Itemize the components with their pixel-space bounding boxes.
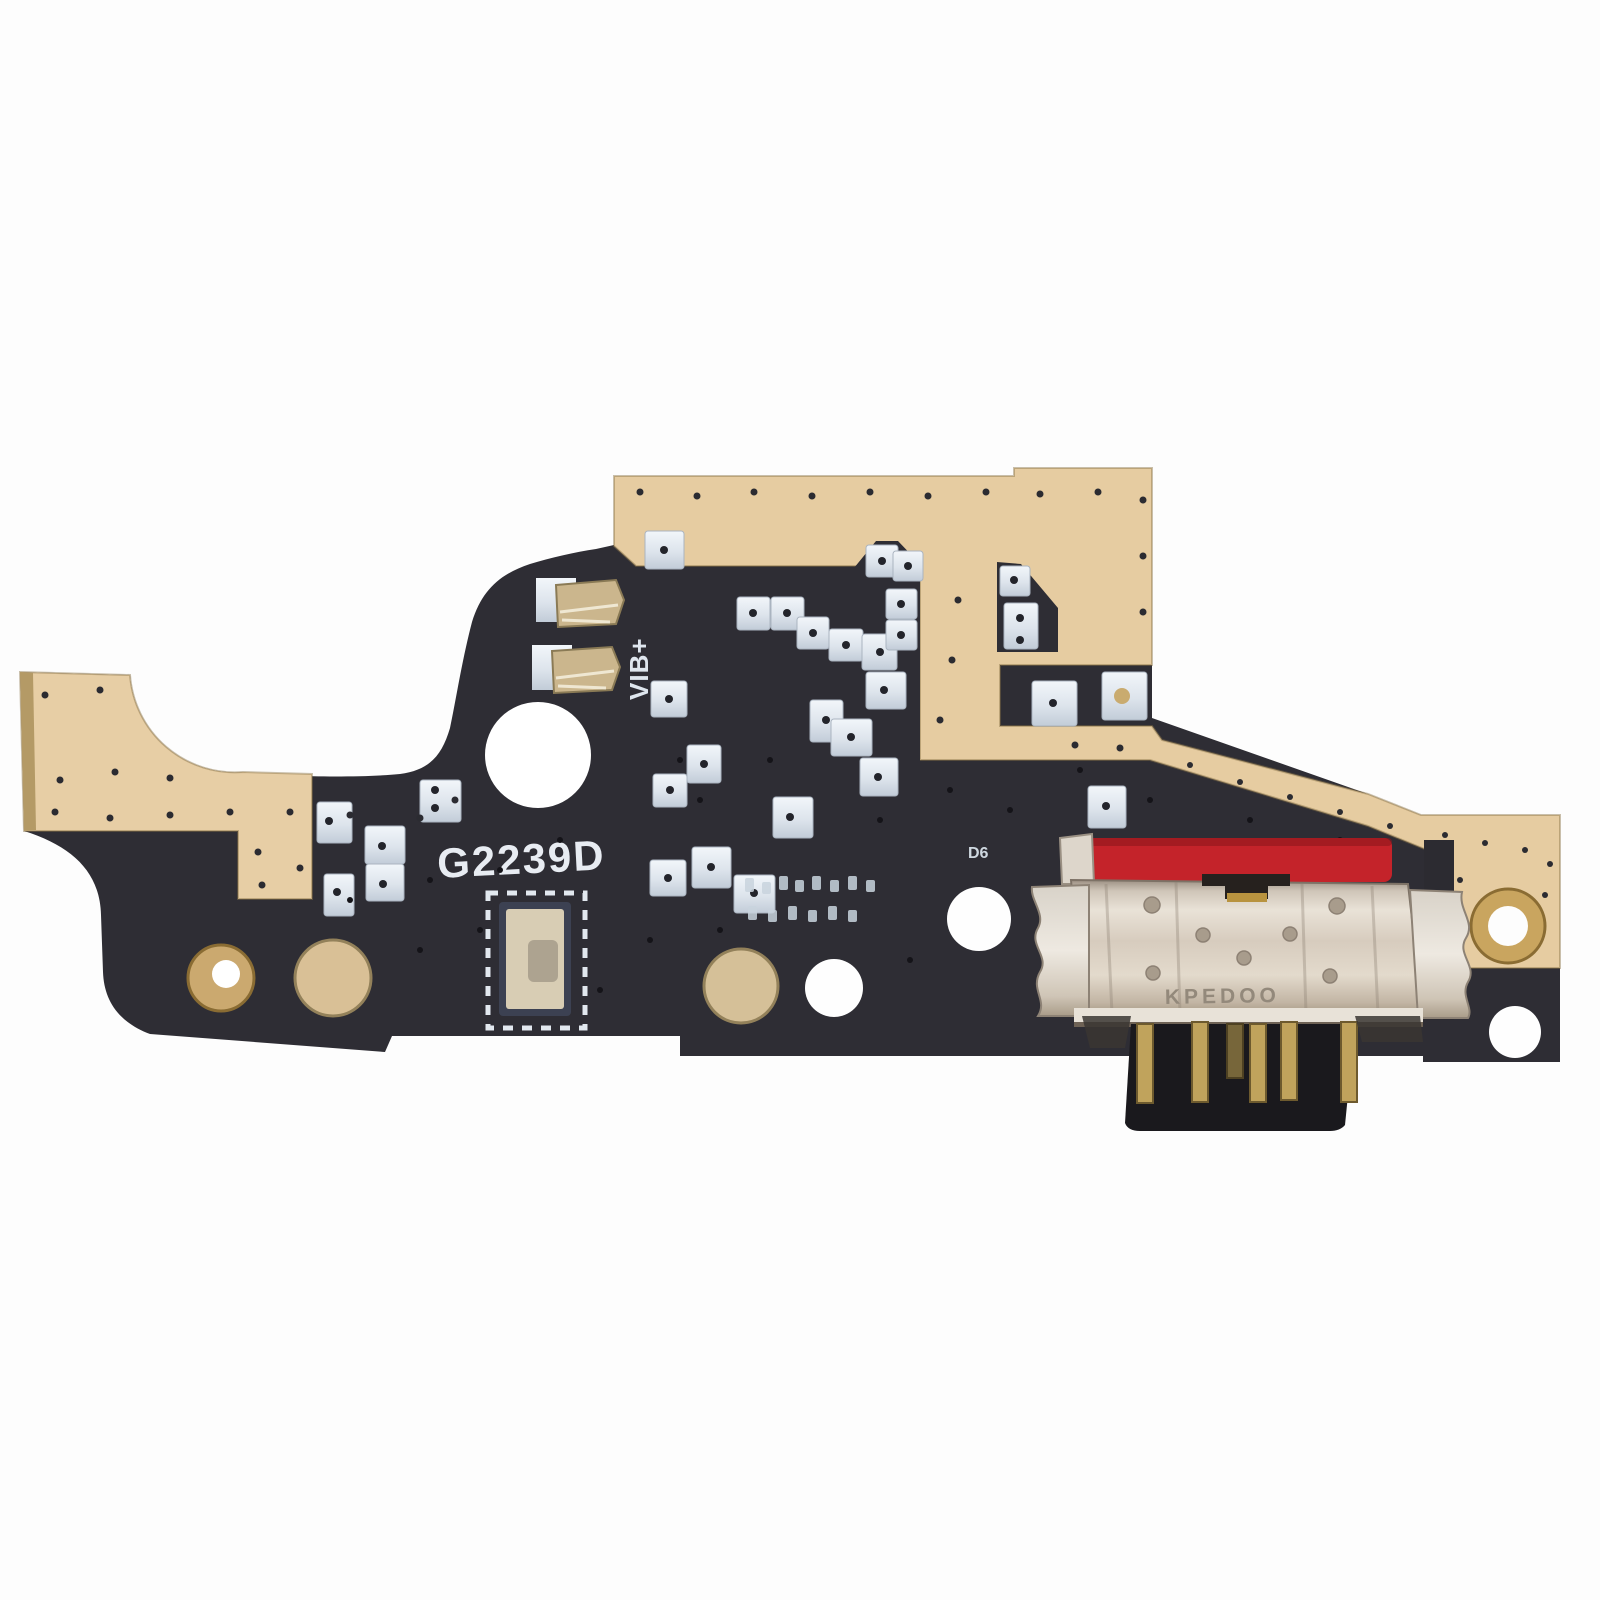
svg-text:D6: D6 (968, 845, 989, 862)
svg-text:KPEDOO: KPEDOO (1165, 984, 1280, 1009)
svg-text:VIB+: VIB+ (624, 637, 654, 700)
svg-text:G2239D: G2239D (436, 831, 607, 887)
